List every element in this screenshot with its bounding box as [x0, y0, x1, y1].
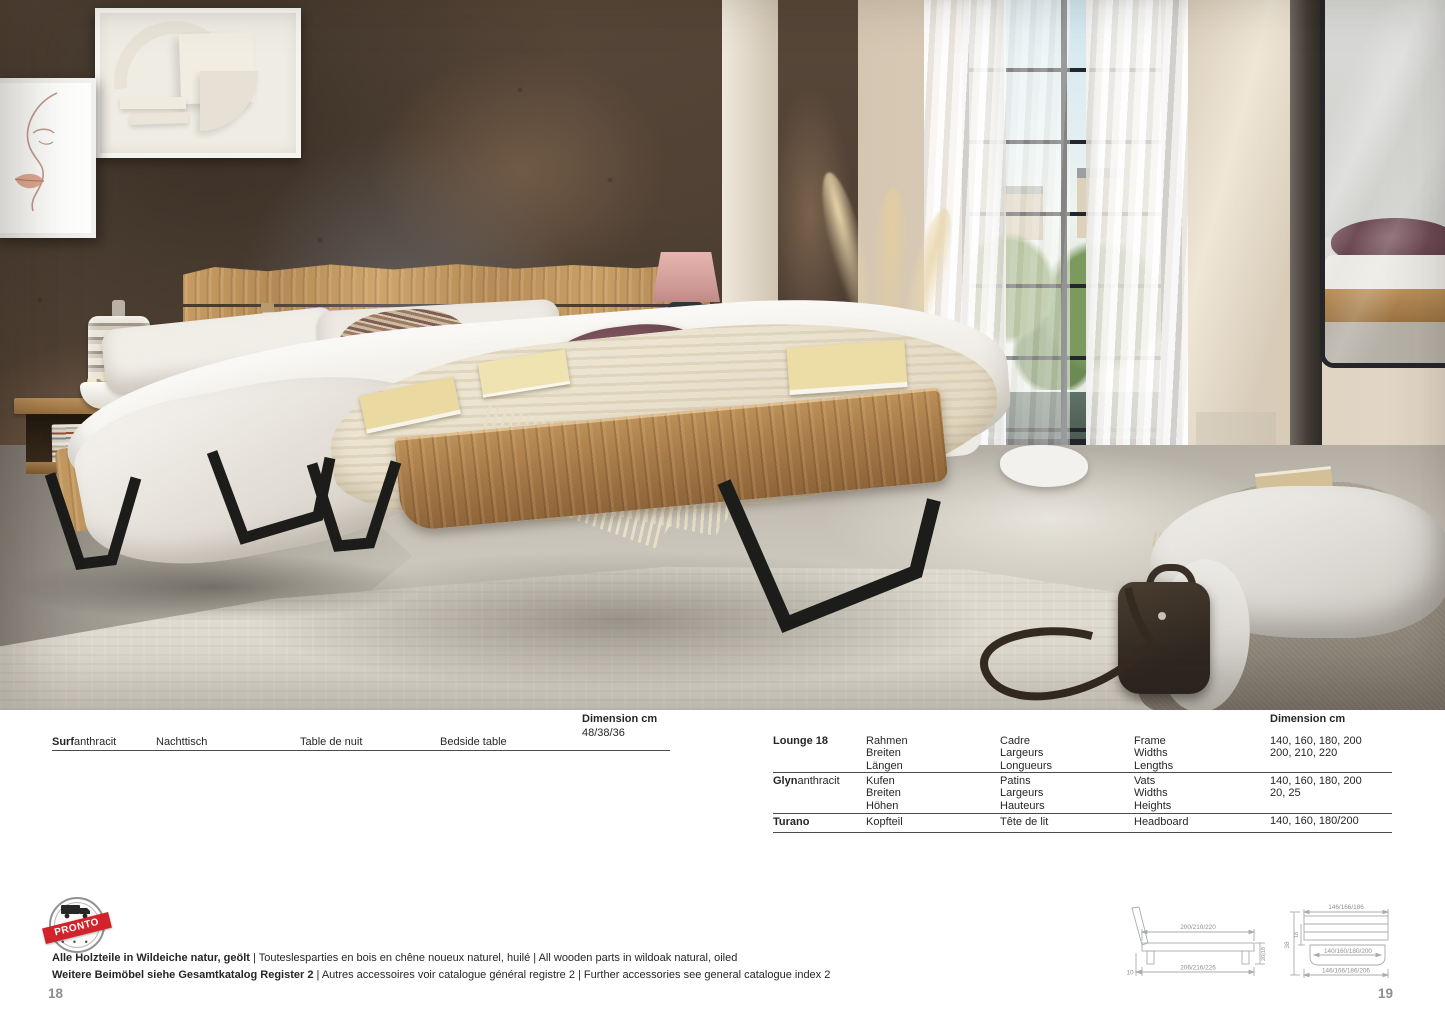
- product-name: Glynanthracit: [773, 775, 840, 787]
- dim-front-bottom: 146/166/186/206: [1322, 968, 1370, 975]
- dimension-values: 140, 160, 180/200: [1270, 815, 1359, 827]
- spec-area: Dimension cm 48/38/36 Surfanthracit Nach…: [0, 710, 1445, 1022]
- dimension-header: Dimension cm: [1270, 713, 1345, 725]
- dimension-values: 140, 160, 180, 200200, 210, 220: [1270, 735, 1362, 760]
- label-de: Nachttisch: [156, 736, 207, 748]
- pronto-stamp: PRONTO • • •: [48, 896, 106, 954]
- table-rule: [773, 772, 1392, 773]
- labels-de: KufenBreitenHöhen: [866, 775, 901, 812]
- dim-side-bottom: 206/216/226: [1180, 965, 1216, 972]
- drawing-leg: [1242, 951, 1249, 964]
- page-number-right: 19: [1378, 988, 1393, 1000]
- label-fr: Table de nuit: [300, 736, 362, 748]
- surf-spec-table: Dimension cm 48/38/36 Surfanthracit Nach…: [52, 711, 670, 757]
- label-en: Bedside table: [440, 736, 507, 748]
- dimension-values: 140, 160, 180, 20020, 25: [1270, 775, 1362, 800]
- dim-front-height: 38: [1284, 941, 1291, 949]
- labels-fr: Tête de lit: [1000, 816, 1048, 828]
- dim-front-inner: 140/160/180/200: [1324, 948, 1372, 955]
- drawing-frame-side: [1142, 943, 1254, 951]
- bed-spec-table: Dimension cm Lounge 18 RahmenBreitenLäng…: [773, 711, 1392, 836]
- material-note: Alle Holzteile in Wildeiche natur, geölt…: [52, 952, 737, 964]
- table-rule: [773, 813, 1392, 814]
- drawing-headboard-side: [1132, 907, 1148, 945]
- stamp-dots: • • •: [48, 936, 104, 948]
- bedroom-photo: [0, 0, 1445, 710]
- product-name: Lounge 18: [773, 735, 828, 747]
- product-name: Surfanthracit: [52, 736, 116, 748]
- table-rule: [52, 750, 670, 751]
- labels-fr: CadreLargeursLongueurs: [1000, 735, 1052, 772]
- dim-side-offset: 10: [1126, 970, 1134, 977]
- labels-de: RahmenBreitenLängen: [866, 735, 908, 772]
- product-name: Turano: [773, 816, 809, 828]
- page-number-left: 18: [48, 988, 63, 1000]
- dim-front-top: 146/166/186: [1328, 904, 1364, 911]
- catalog-page: Dimension cm 48/38/36 Surfanthracit Nach…: [0, 0, 1445, 1022]
- dim-front-inner-height: 18: [1294, 932, 1300, 938]
- dimension-value: 48/38/36: [582, 727, 625, 739]
- drawing-leg: [1147, 951, 1154, 964]
- labels-en: FrameWidthsLengths: [1134, 735, 1173, 772]
- drawing-headboard-front: [1304, 916, 1388, 940]
- dim-side-height: 20|18: [1261, 947, 1267, 961]
- table-rule: [773, 832, 1392, 833]
- photo-vignette: [0, 0, 1445, 710]
- accessories-note: Weitere Beimöbel siehe Gesamtkatalog Reg…: [52, 969, 830, 981]
- labels-fr: PatinsLargeursHauteurs: [1000, 775, 1045, 812]
- tech-drawings: 200/210/220 206/216/226 10 20|18 146/166…: [1108, 893, 1400, 989]
- dimension-header: Dimension cm: [582, 713, 657, 725]
- labels-en: VatsWidthsHeights: [1134, 775, 1171, 812]
- dim-side-top: 200/210/220: [1180, 924, 1216, 931]
- labels-en: Headboard: [1134, 816, 1188, 828]
- labels-de: Kopfteil: [866, 816, 903, 828]
